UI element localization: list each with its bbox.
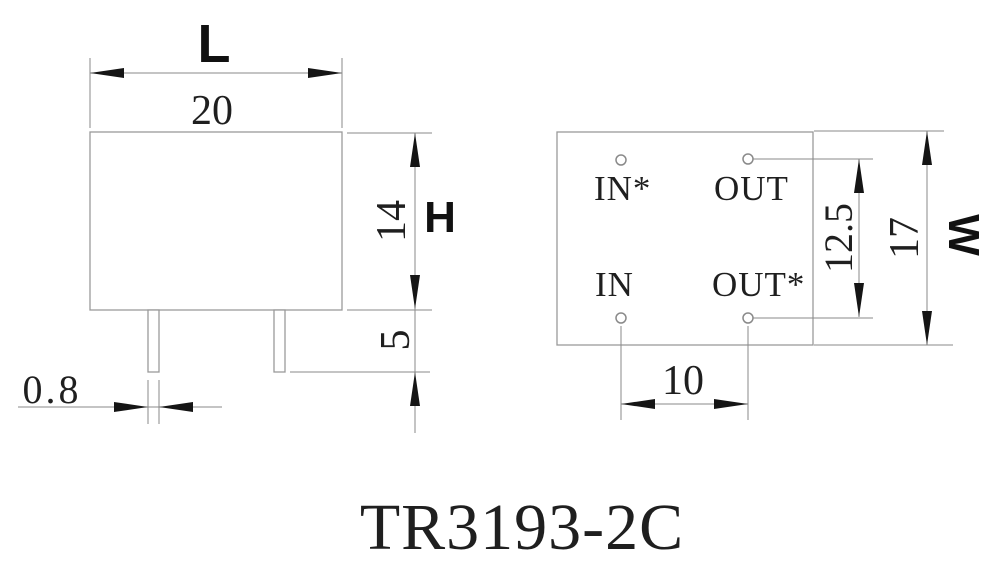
- dim-height-value: 14: [370, 181, 414, 261]
- dim-length-value: 20: [162, 89, 262, 133]
- arrowhead-up: [922, 131, 932, 165]
- arrowhead-down: [922, 311, 932, 345]
- front-view-body: [90, 132, 342, 310]
- arrowhead-down: [410, 275, 420, 309]
- bottom-view-body: [557, 132, 813, 345]
- pin-label-in-star: IN*: [594, 169, 651, 209]
- dim-column-pitch-value: 10: [638, 359, 728, 403]
- dim-width-letter: W: [939, 205, 987, 265]
- arrowhead-right: [114, 402, 148, 412]
- pin-hole-in-star: [616, 155, 626, 165]
- pin-label-out: OUT: [714, 169, 789, 209]
- dim-height-letter: H: [410, 194, 470, 242]
- dim-row-pitch-value: 12.5: [818, 183, 860, 293]
- pin-hole-out: [743, 154, 753, 164]
- part-number-title: TR3193-2C: [272, 490, 772, 566]
- front-view-pin-right: [274, 310, 285, 372]
- dim-pin-width-value: 0.8: [7, 369, 97, 411]
- arrowhead-right: [308, 68, 342, 78]
- dim-length-letter: L: [174, 14, 254, 74]
- pin-hole-out-star: [743, 313, 753, 323]
- pin-label-in: IN: [595, 265, 634, 305]
- arrowhead-left: [90, 68, 124, 78]
- bottom-view: [557, 132, 813, 345]
- arrowhead-up: [410, 372, 420, 406]
- pin-label-out-star: OUT*: [712, 265, 805, 305]
- technical-drawing-page: L 20 14 H 5 0.8 IN* OUT IN OUT* 12.5 17 …: [0, 0, 1000, 574]
- dim-pin-length-value: 5: [374, 310, 418, 370]
- pin-hole-in: [616, 313, 626, 323]
- arrowhead-left: [159, 402, 193, 412]
- dim-width-value: 17: [884, 198, 926, 278]
- arrowhead-up: [410, 133, 420, 167]
- front-view-pin-left: [148, 310, 159, 372]
- front-view: [90, 132, 342, 372]
